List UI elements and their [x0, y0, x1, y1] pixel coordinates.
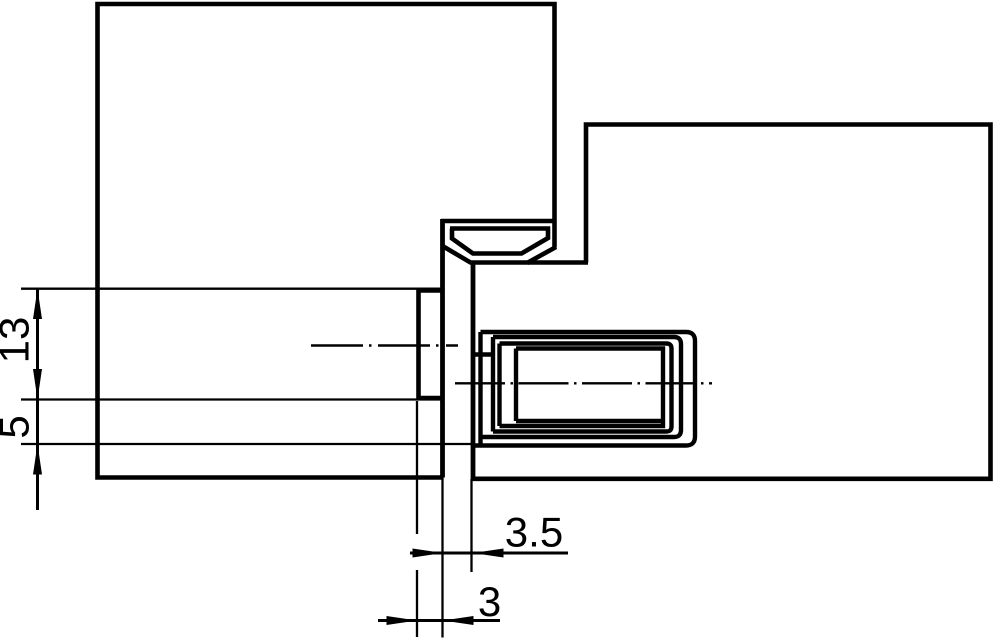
- svg-text:13: 13: [0, 317, 38, 364]
- svg-text:3.5: 3.5: [505, 509, 563, 556]
- svg-text:5: 5: [0, 415, 38, 438]
- svg-text:3: 3: [478, 578, 501, 625]
